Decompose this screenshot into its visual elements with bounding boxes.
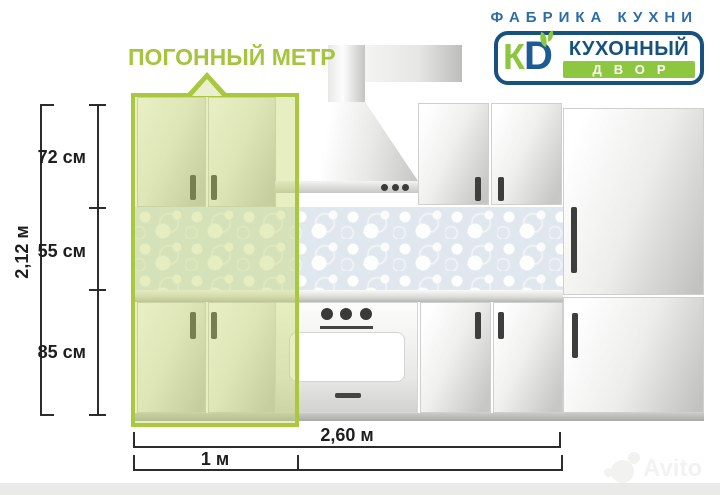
dimension-tick (561, 455, 563, 470)
stove-panel-line (320, 326, 373, 329)
cabinet-door (563, 108, 704, 295)
dimension-tick (40, 104, 54, 106)
segment-dimension-line (97, 104, 99, 416)
dimension-tick (40, 414, 54, 416)
door-handle (498, 312, 504, 339)
hood-button (392, 184, 399, 191)
brand-name-top: КУХОННЫЙ (563, 39, 695, 60)
brand-monogram: К D (503, 36, 563, 80)
hood-button (381, 184, 388, 191)
stove-knob (321, 308, 333, 320)
stove-knob (360, 308, 372, 320)
linear-meter-width-label: 1 м (133, 450, 297, 468)
door-handle (498, 177, 504, 201)
base-cabinet-height-label: 85 см (24, 342, 86, 362)
oven-door-window (289, 332, 405, 382)
upper-cabinet-height-label: 72 см (24, 147, 86, 167)
linear-meter-dimension-line (133, 469, 563, 471)
tall-cabinet (563, 108, 704, 413)
floor-strip (0, 483, 720, 495)
dimension-tick (89, 207, 106, 209)
dimension-tick (297, 455, 299, 470)
total-width-label: 2,60 м (133, 426, 561, 444)
brand-name-bottom: ДВОР (563, 61, 695, 78)
leaf-icon (546, 30, 555, 41)
wall-cabinet-right (418, 103, 562, 205)
kitchen-ad-diagram: ФАБРИКА КУХНИ К D КУХОННЫЙ ДВОР ПОГОННЫЙ… (0, 0, 720, 495)
linear-meter-callout-label: ПОГОННЫЙ МЕТР (128, 44, 336, 71)
monogram-letter-d: D (524, 36, 553, 76)
avito-logo-icon (628, 452, 640, 464)
base-cabinet-right (420, 302, 563, 413)
door-handle (571, 207, 577, 273)
cabinet-door (563, 297, 704, 413)
brand-name: КУХОННЫЙ ДВОР (563, 39, 695, 78)
dimension-tick (89, 104, 106, 106)
avito-watermark: Avito (643, 455, 702, 483)
total-width-dimension-line (133, 446, 561, 448)
brand-logo: К D КУХОННЫЙ ДВОР (494, 31, 704, 85)
monogram-letter-k: К (503, 39, 525, 75)
dimension-tick (89, 289, 106, 291)
cooker-hood (298, 102, 418, 181)
door-handle (475, 177, 481, 201)
brand-tagline: ФАБРИКА КУХНИ (491, 9, 698, 26)
hood-duct (365, 45, 462, 82)
hood-button (402, 184, 409, 191)
backsplash-height-label: 55 см (24, 241, 86, 261)
linear-meter-highlight (131, 93, 299, 427)
stove-knob (340, 308, 352, 320)
dimension-tick (89, 414, 106, 416)
door-handle (572, 313, 578, 358)
oven-handle (335, 393, 361, 398)
door-handle (475, 312, 481, 339)
highlight-pointer-icon (192, 79, 222, 96)
